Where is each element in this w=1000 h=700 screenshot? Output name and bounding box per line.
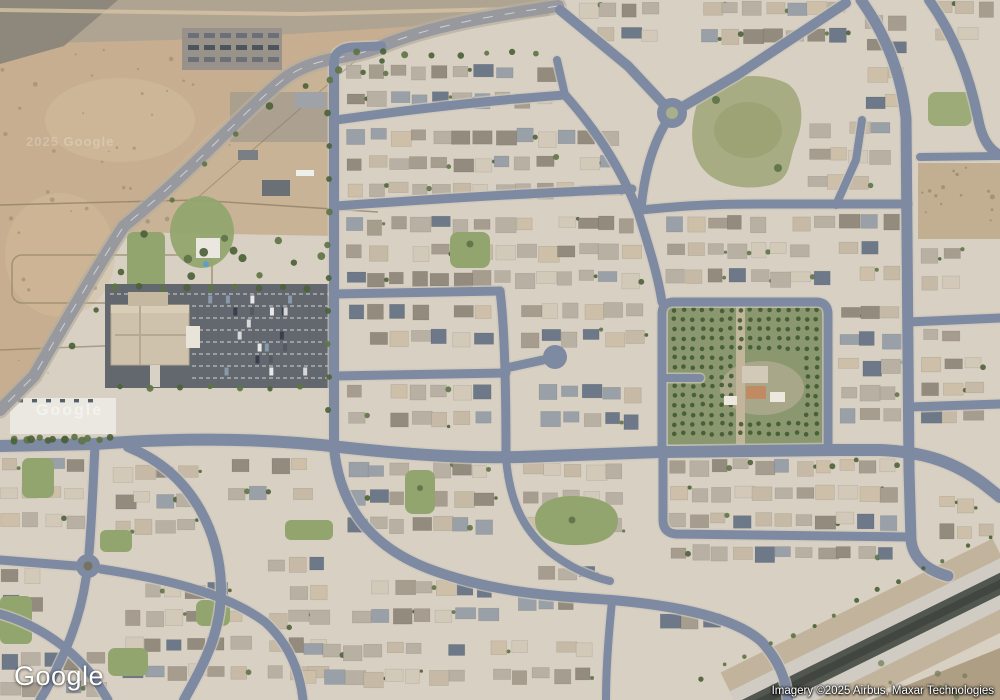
google-logo[interactable]: Google <box>14 661 104 692</box>
map-attribution: Imagery ©2025 Airbus, Maxar Technologies <box>772 685 994 697</box>
satellite-imagery <box>0 0 1000 700</box>
satellite-map-viewport[interactable]: 2025 Google Google Google Imagery ©2025 … <box>0 0 1000 700</box>
